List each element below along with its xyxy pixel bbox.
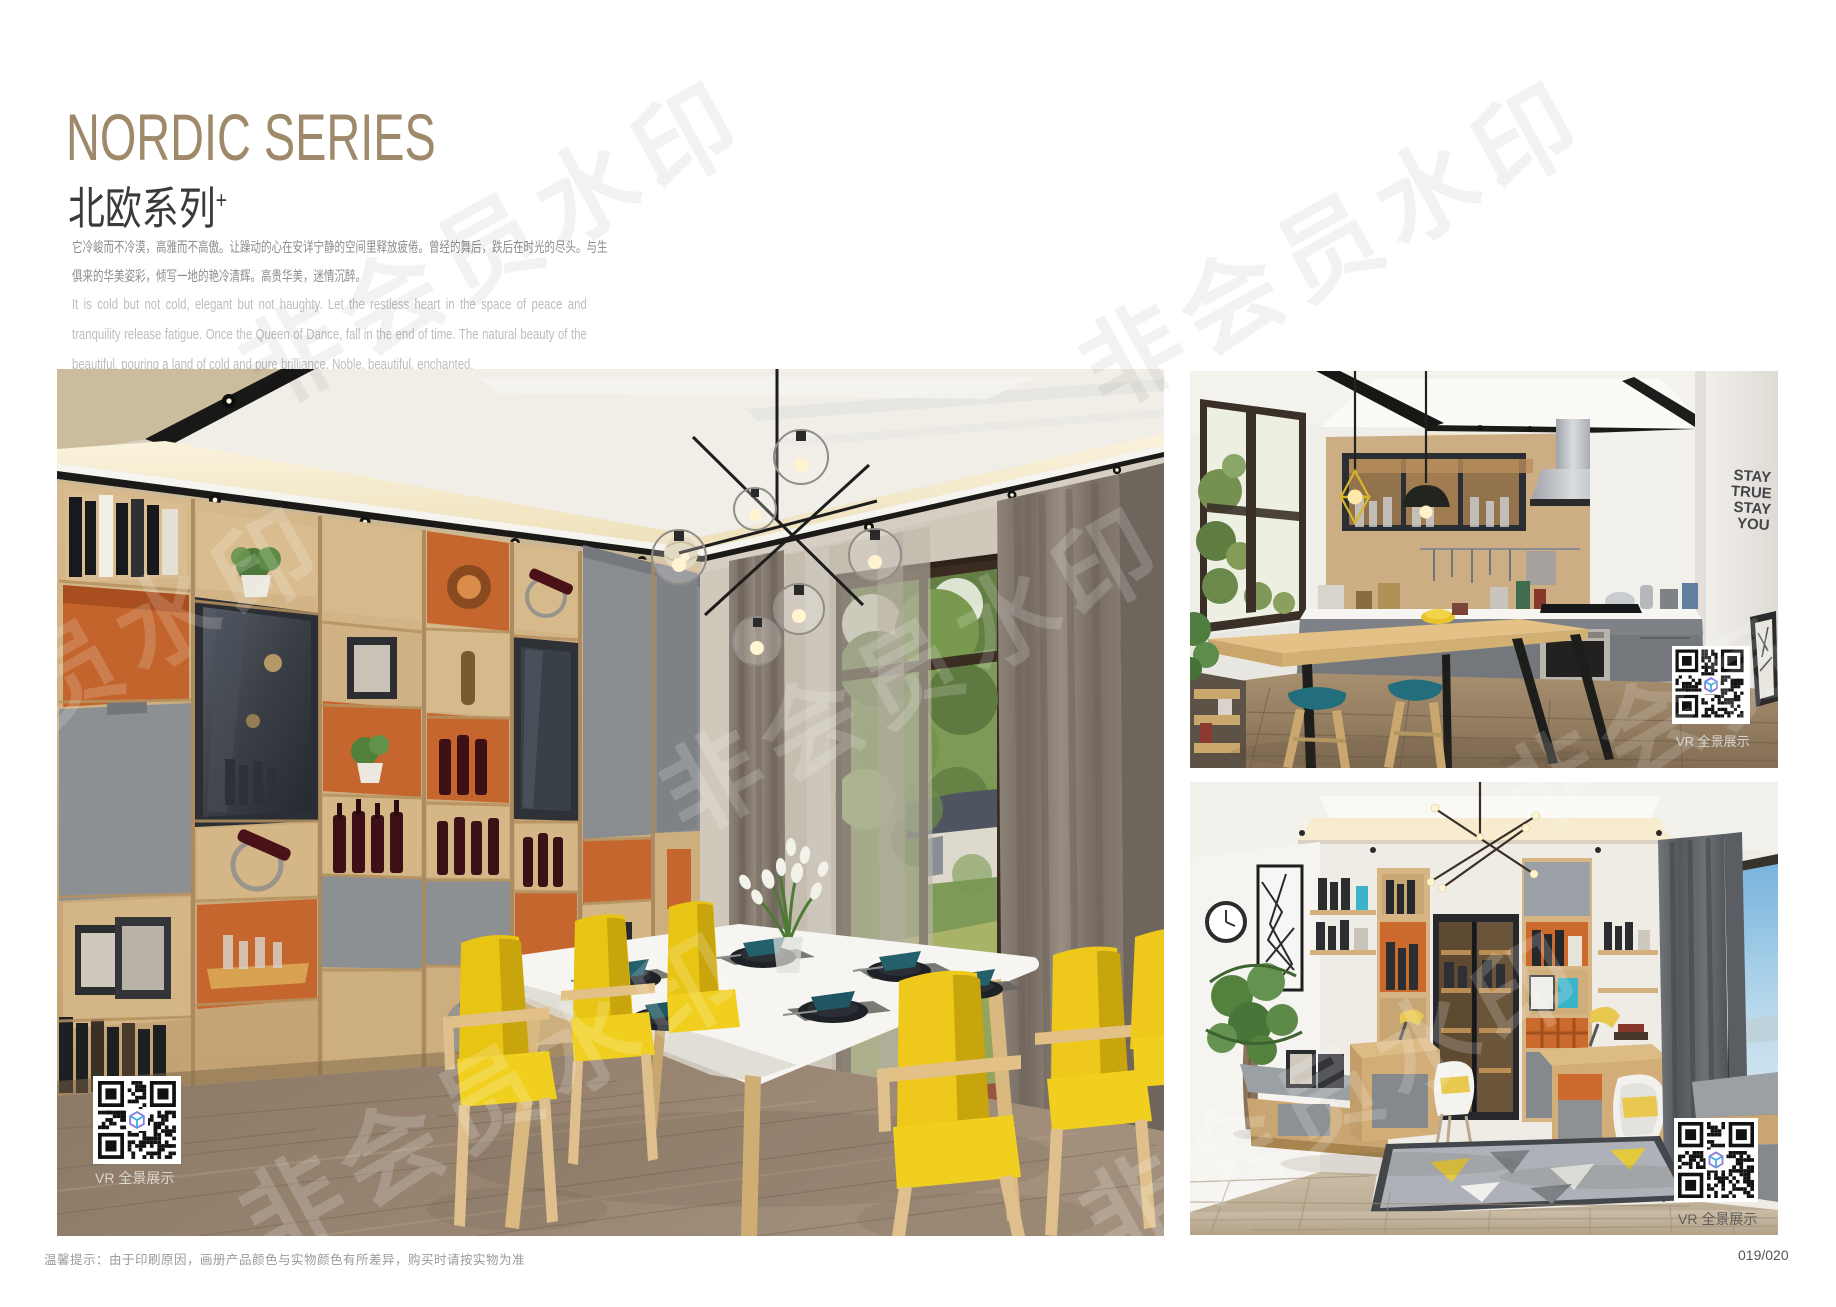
svg-text:YOU: YOU xyxy=(1737,515,1771,534)
svg-text:VR 全景展示: VR 全景展示 xyxy=(95,1170,174,1186)
svg-text:VR 全景展示: VR 全景展示 xyxy=(1676,734,1750,749)
svg-text:VR 全景展示: VR 全景展示 xyxy=(1678,1211,1757,1227)
